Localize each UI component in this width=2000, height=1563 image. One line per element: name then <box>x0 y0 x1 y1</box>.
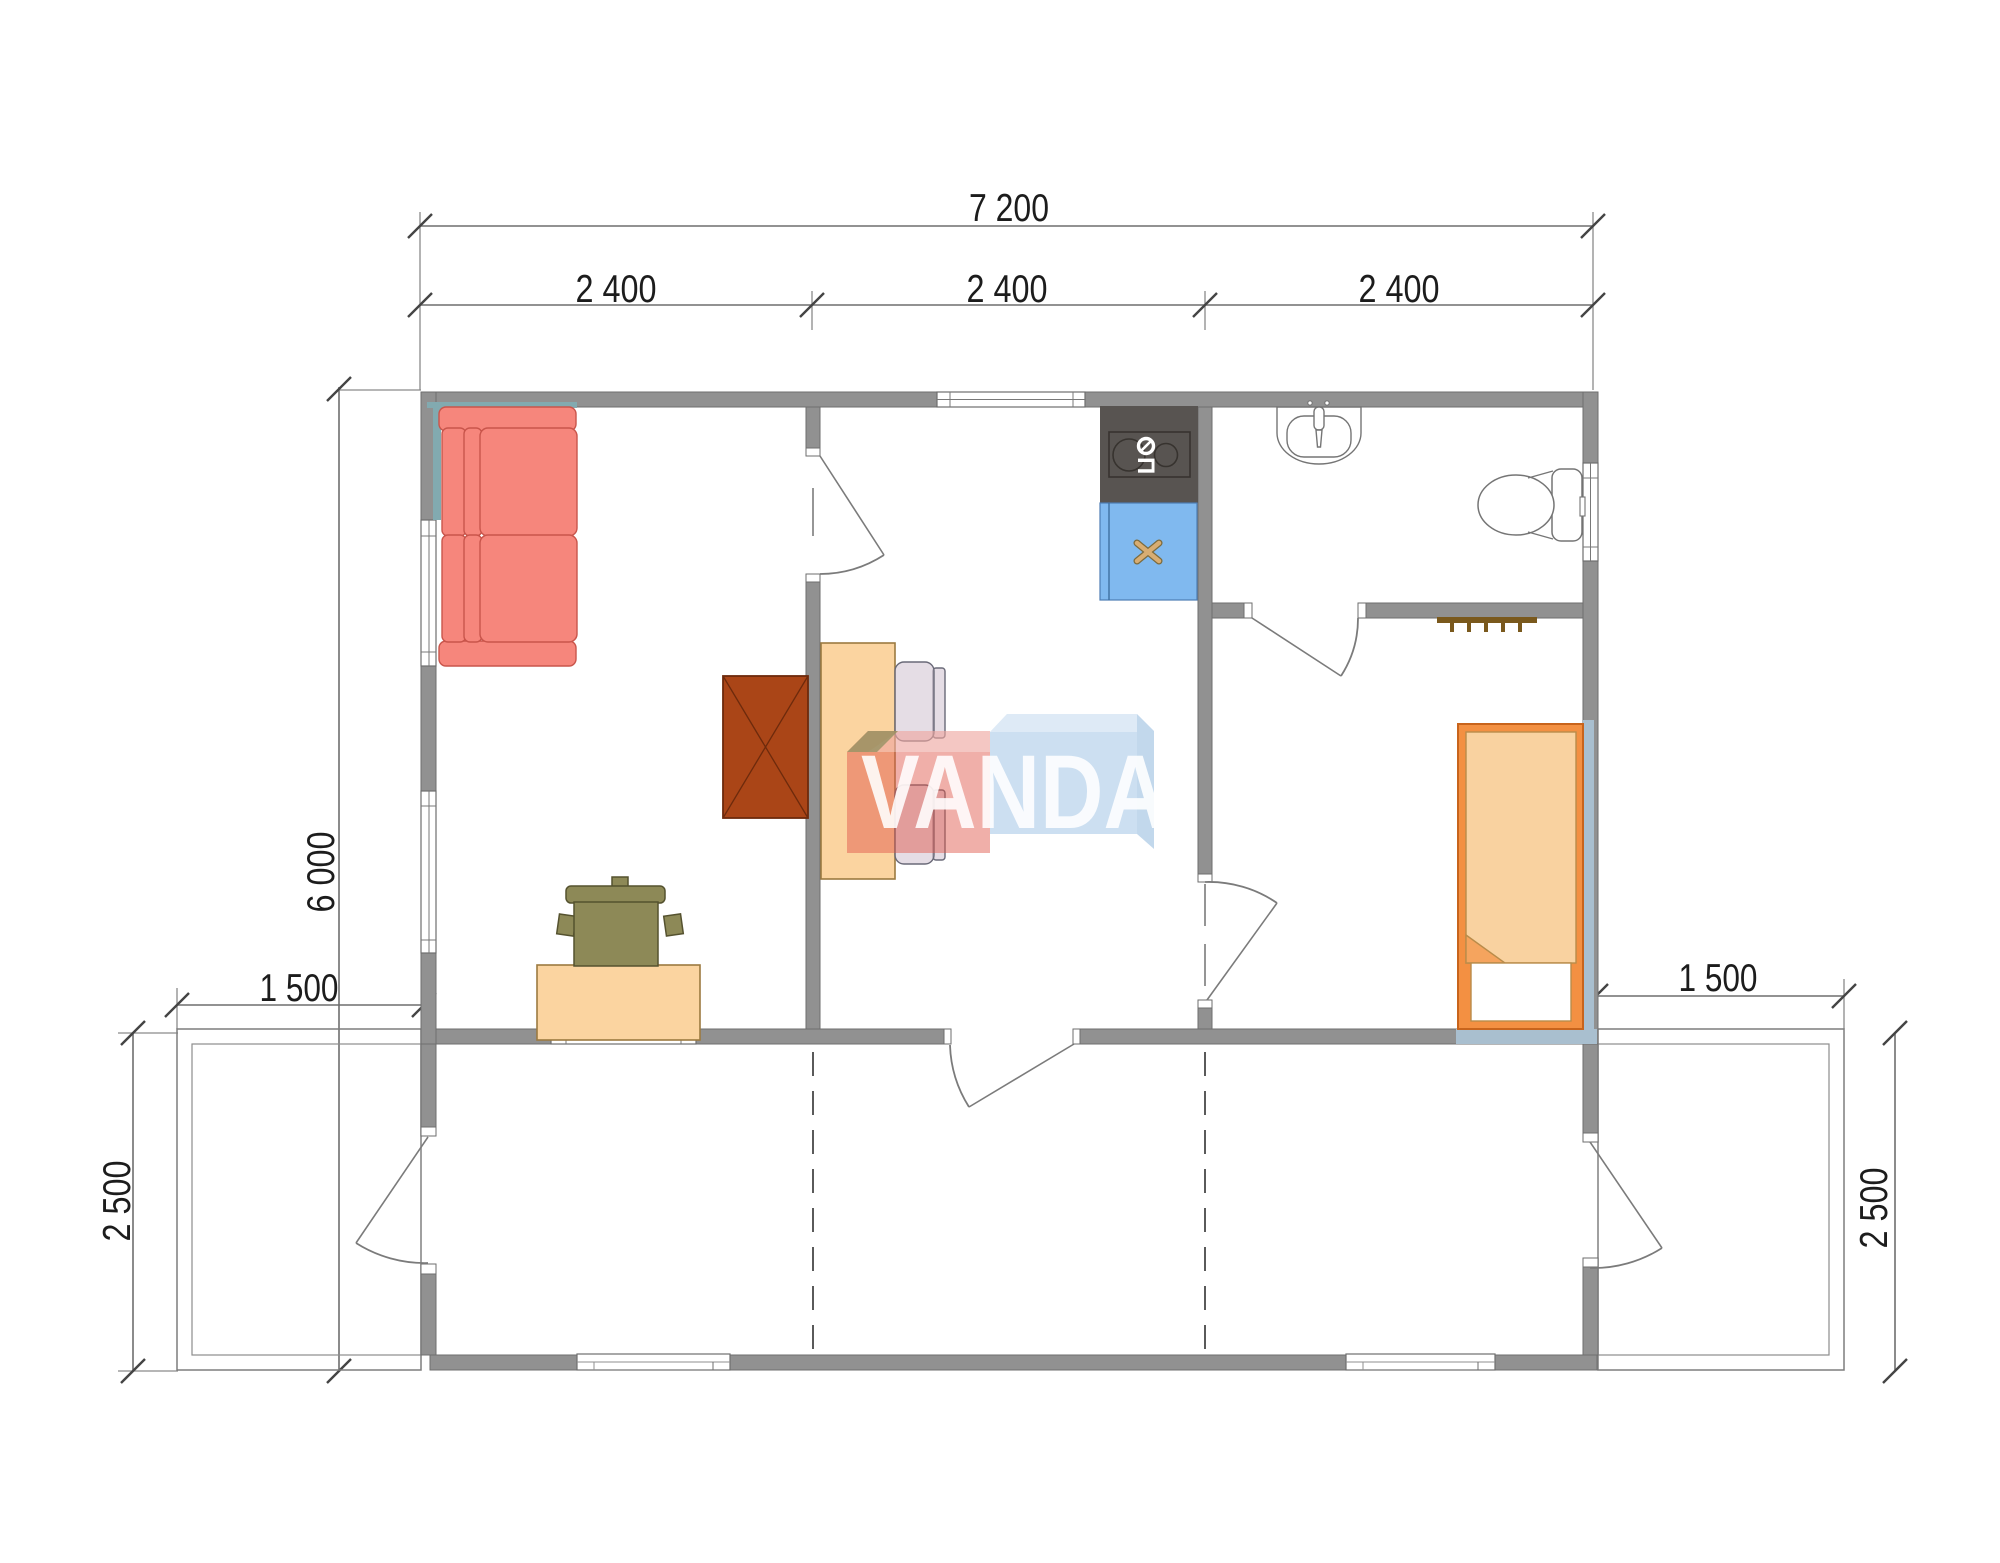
svg-text:2 400: 2 400 <box>1359 268 1440 311</box>
svg-text:6 000: 6 000 <box>300 832 343 913</box>
svg-text:2 500: 2 500 <box>1853 1168 1896 1249</box>
svg-text:2 500: 2 500 <box>96 1161 139 1242</box>
svg-text:1 500: 1 500 <box>1679 957 1758 1000</box>
svg-text:2 400: 2 400 <box>967 268 1048 311</box>
svg-text:VANDA: VANDA <box>861 734 1167 851</box>
svg-text:1 500: 1 500 <box>260 967 339 1010</box>
svg-text:П: П <box>1132 457 1159 474</box>
svg-text:2 400: 2 400 <box>576 268 657 311</box>
svg-text:7 200: 7 200 <box>969 187 1049 230</box>
